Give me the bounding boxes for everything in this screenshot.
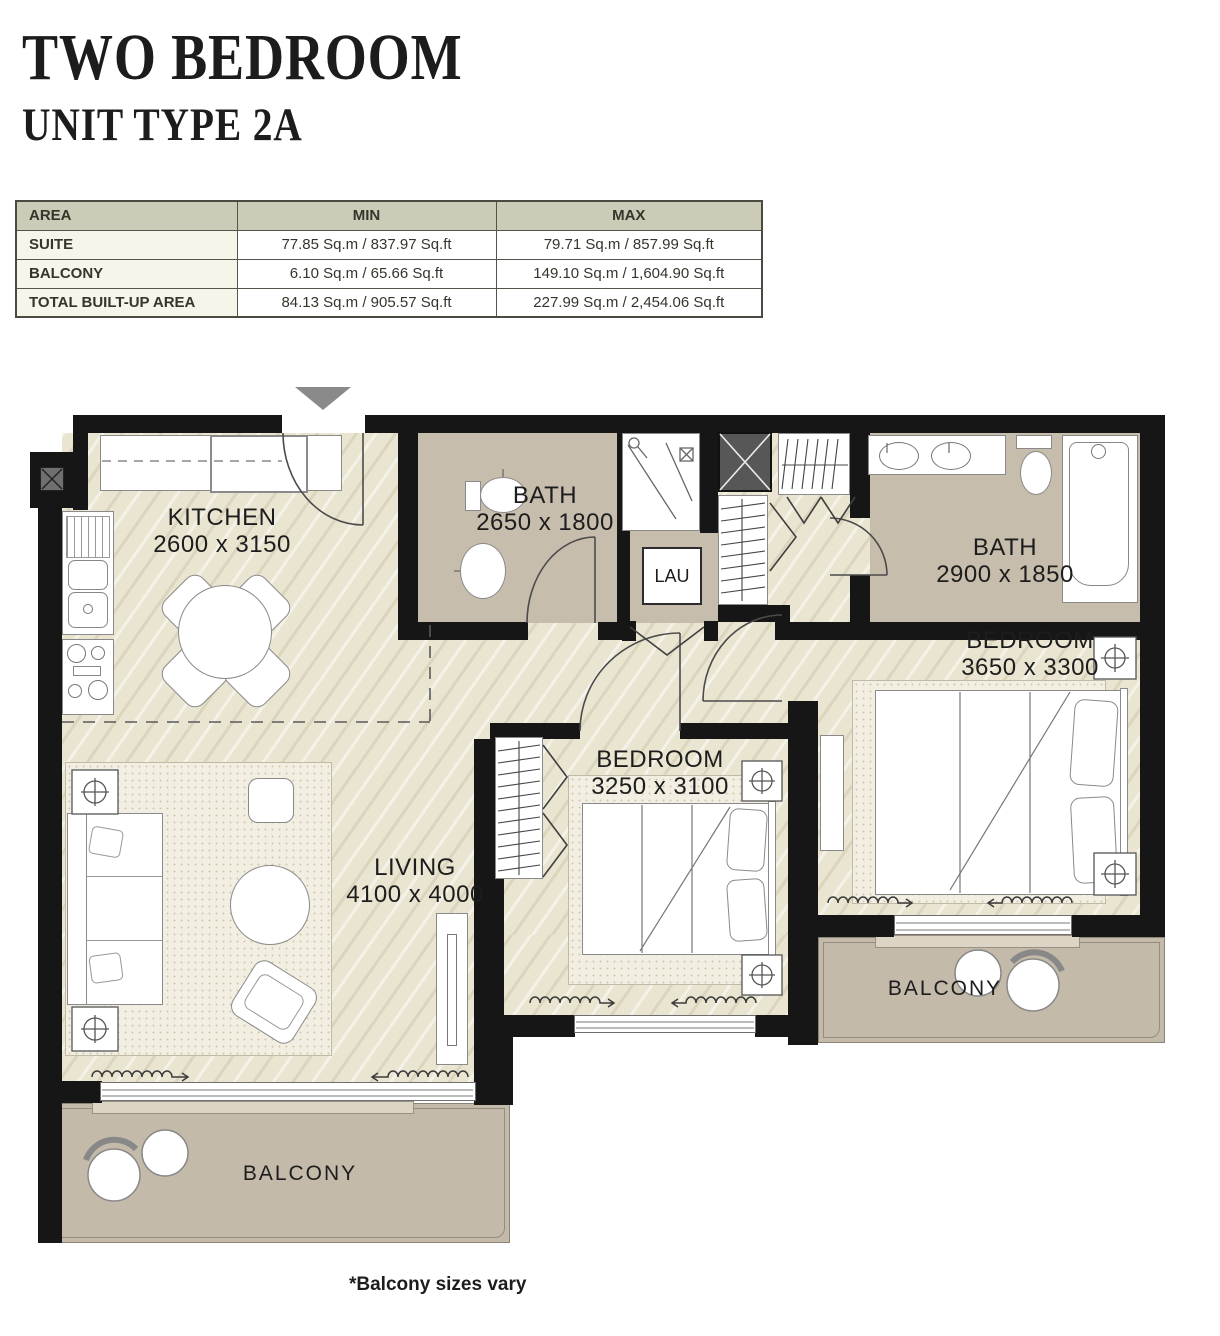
laundry-closet: LAU [642, 547, 702, 605]
sink-bowl [68, 560, 108, 590]
table-row-balcony: BALCONY 6.10 Sq.m / 65.66 Sq.ft 149.10 S… [16, 259, 762, 288]
wall-lau-left [617, 530, 630, 623]
toilet-tank [1016, 435, 1052, 449]
wall-bed2-window-left-cap [513, 1015, 575, 1037]
wall-bath2-left-top [850, 433, 870, 518]
row-max: 149.10 Sq.m / 1,604.90 Sq.ft [496, 259, 762, 288]
label-bath2: BATH 2900 x 1850 [910, 535, 1100, 589]
room-name: LIVING [330, 855, 500, 882]
dining-table [178, 585, 272, 679]
room-dimensions: 2600 x 3150 [127, 532, 317, 559]
page-title: TWO BEDROOM [22, 20, 463, 96]
vanity-sink [879, 442, 919, 470]
armchair-seat [241, 971, 306, 1032]
wall-right [1140, 415, 1165, 937]
table-row-suite: SUITE 77.85 Sq.m / 837.97 Sq.ft 79.71 Sq… [16, 230, 762, 259]
fridge [210, 435, 308, 493]
wall-living-window-left-cap [38, 1081, 102, 1103]
row-max: 227.99 Sq.m / 2,454.06 Sq.ft [496, 288, 762, 317]
col-header-max: MAX [496, 201, 762, 230]
balcony-sill-right [875, 935, 1080, 948]
wardrobe-bedroom2 [495, 737, 543, 879]
closet-top [778, 433, 850, 495]
toilet-bowl [1020, 451, 1052, 495]
room-dimensions: 3650 x 3300 [930, 655, 1130, 682]
wall-shower-shaft [700, 433, 718, 533]
wall-living-bed2-pillar [474, 1015, 513, 1105]
wall-master-window-right-cap [1072, 915, 1165, 937]
dresser-master [820, 735, 844, 851]
bath1-sink [460, 543, 506, 599]
room-name: BATH [460, 483, 630, 510]
balcony-note: *Balcony sizes vary [349, 1274, 526, 1296]
page-subtitle: UNIT TYPE 2A [22, 98, 303, 152]
label-bedroom2: BEDROOM 3250 x 3100 [560, 747, 760, 801]
stove-panel [73, 666, 101, 676]
label-bath1: BATH 2650 x 1800 [460, 483, 630, 537]
room-name: BEDROOM [560, 747, 760, 774]
room-name: BALCONY [243, 1162, 357, 1185]
wall-bath1-left [398, 433, 418, 623]
wall-lau-stub-right [704, 621, 718, 641]
wall-top-right [365, 415, 1140, 433]
wall-window-x-icon [40, 467, 64, 491]
balcony-sill-bottom [92, 1101, 414, 1114]
bath2-vanity [868, 435, 1006, 475]
window-living [100, 1082, 476, 1101]
room-name: BALCONY [888, 977, 1002, 1000]
sofa-cushion-line [86, 876, 162, 877]
table-header-row: AREA MIN MAX [16, 201, 762, 230]
pillow [1069, 699, 1119, 788]
stove [62, 639, 114, 715]
service-shaft [718, 432, 772, 492]
tv-screen [447, 934, 457, 1046]
pillow [726, 808, 768, 872]
window-bedroom2 [574, 1015, 756, 1033]
room-name: BATH [910, 535, 1100, 562]
side-table [248, 778, 294, 823]
label-balcony-bottom: BALCONY [200, 1162, 400, 1186]
sofa-pillow [88, 825, 124, 858]
table-row-total: TOTAL BUILT-UP AREA 84.13 Sq.m / 905.57 … [16, 288, 762, 317]
burner-icon [67, 644, 86, 663]
room-dimensions: 2900 x 1850 [910, 562, 1100, 589]
wall-bath1-door-stub [598, 622, 622, 640]
wall-bath1-bottom [398, 622, 528, 640]
label-balcony-right: BALCONY [855, 977, 1035, 1001]
row-label: TOTAL BUILT-UP AREA [16, 288, 237, 317]
room-name: KITCHEN [127, 505, 317, 532]
closet-hall [718, 495, 768, 605]
wall-bed2-master [788, 701, 818, 1045]
pillow [726, 878, 768, 942]
label-kitchen: KITCHEN 2600 x 3150 [127, 505, 317, 559]
bed-headboard [1120, 688, 1128, 896]
wall-topleft-connector [73, 415, 88, 510]
burner-icon [68, 684, 82, 698]
row-max: 79.71 Sq.m / 857.99 Sq.ft [496, 230, 762, 259]
wall-bed2-top-right [680, 723, 788, 739]
tv-unit [436, 913, 468, 1065]
floor-plan: LAU [30, 385, 1170, 1247]
room-name: BEDROOM [930, 628, 1130, 655]
sofa-cushion-line [86, 940, 162, 941]
burner-icon [91, 646, 105, 660]
wall-top-left [88, 415, 282, 433]
row-label: BALCONY [16, 259, 237, 288]
wall-master-window-left-cap [788, 915, 894, 937]
drainboard [66, 516, 110, 558]
row-min: 6.10 Sq.m / 65.66 Sq.ft [237, 259, 496, 288]
coffee-table [230, 865, 310, 945]
label-bedroom-master: BEDROOM 3650 x 3300 [930, 628, 1130, 682]
burner-icon [88, 680, 108, 700]
laundry-label: LAU [654, 566, 689, 587]
entry-arrow-icon [295, 387, 351, 410]
pillow [1070, 796, 1118, 884]
shower [622, 433, 700, 531]
window-master [894, 915, 1072, 935]
kitchen-sink-unit [62, 511, 114, 635]
faucet-icon [83, 604, 93, 614]
row-min: 84.13 Sq.m / 905.57 Sq.ft [237, 288, 496, 317]
room-dimensions: 4100 x 4000 [330, 882, 500, 909]
sofa-pillow [88, 952, 124, 984]
wall-closet-bottom [718, 605, 790, 622]
vanity-sink [931, 442, 971, 470]
area-table: AREA MIN MAX SUITE 77.85 Sq.m / 837.97 S… [15, 200, 763, 318]
wall-lau-stub-left [622, 621, 636, 641]
wall-left [38, 493, 62, 1243]
sofa [67, 813, 163, 1005]
row-min: 77.85 Sq.m / 837.97 Sq.ft [237, 230, 496, 259]
floor-plan-page: { "header": { "title": "TWO BEDROOM", "s… [0, 0, 1220, 1336]
room-dimensions: 2650 x 1800 [460, 510, 630, 537]
wall-bath2-left-bottom [850, 575, 870, 623]
bed-headboard [768, 801, 776, 957]
row-label: SUITE [16, 230, 237, 259]
room-dimensions: 3250 x 3100 [560, 774, 760, 801]
col-header-min: MIN [237, 201, 496, 230]
sofa-back [86, 814, 87, 1004]
col-header-area: AREA [16, 201, 237, 230]
label-living: LIVING 4100 x 4000 [330, 855, 500, 909]
bathtub-faucet-icon [1091, 444, 1106, 459]
